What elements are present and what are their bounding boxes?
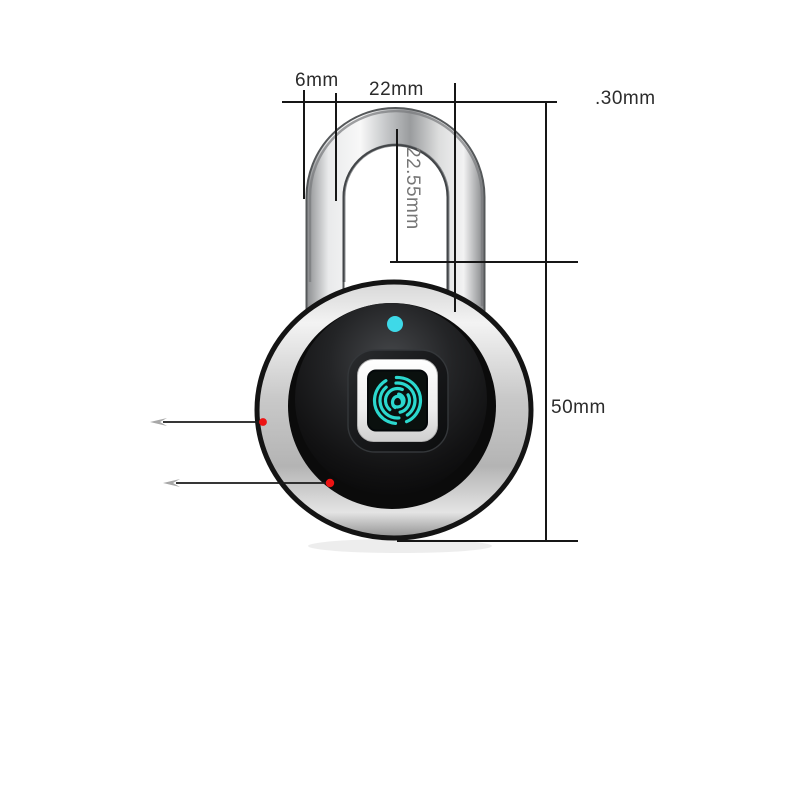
dimension-label-50mm: 50mm bbox=[551, 397, 606, 419]
product-photo-scene: 6mm 22mm .30mm 22.55mm 50mm bbox=[0, 0, 800, 800]
dimension-label-30mm: .30mm bbox=[595, 88, 656, 110]
dimension-label-22-55mm: 22.55mm bbox=[401, 147, 423, 230]
led-indicator-dot bbox=[387, 316, 403, 332]
dimension-label-22mm: 22mm bbox=[369, 79, 424, 101]
red-marker-dot-2 bbox=[326, 479, 334, 487]
fingerprint-sensor-screen bbox=[368, 371, 427, 431]
padlock-illustration bbox=[0, 0, 800, 800]
dimension-label-6mm: 6mm bbox=[295, 70, 339, 92]
fingerprint-sensor bbox=[348, 350, 448, 452]
red-marker-dot-1 bbox=[259, 418, 267, 426]
